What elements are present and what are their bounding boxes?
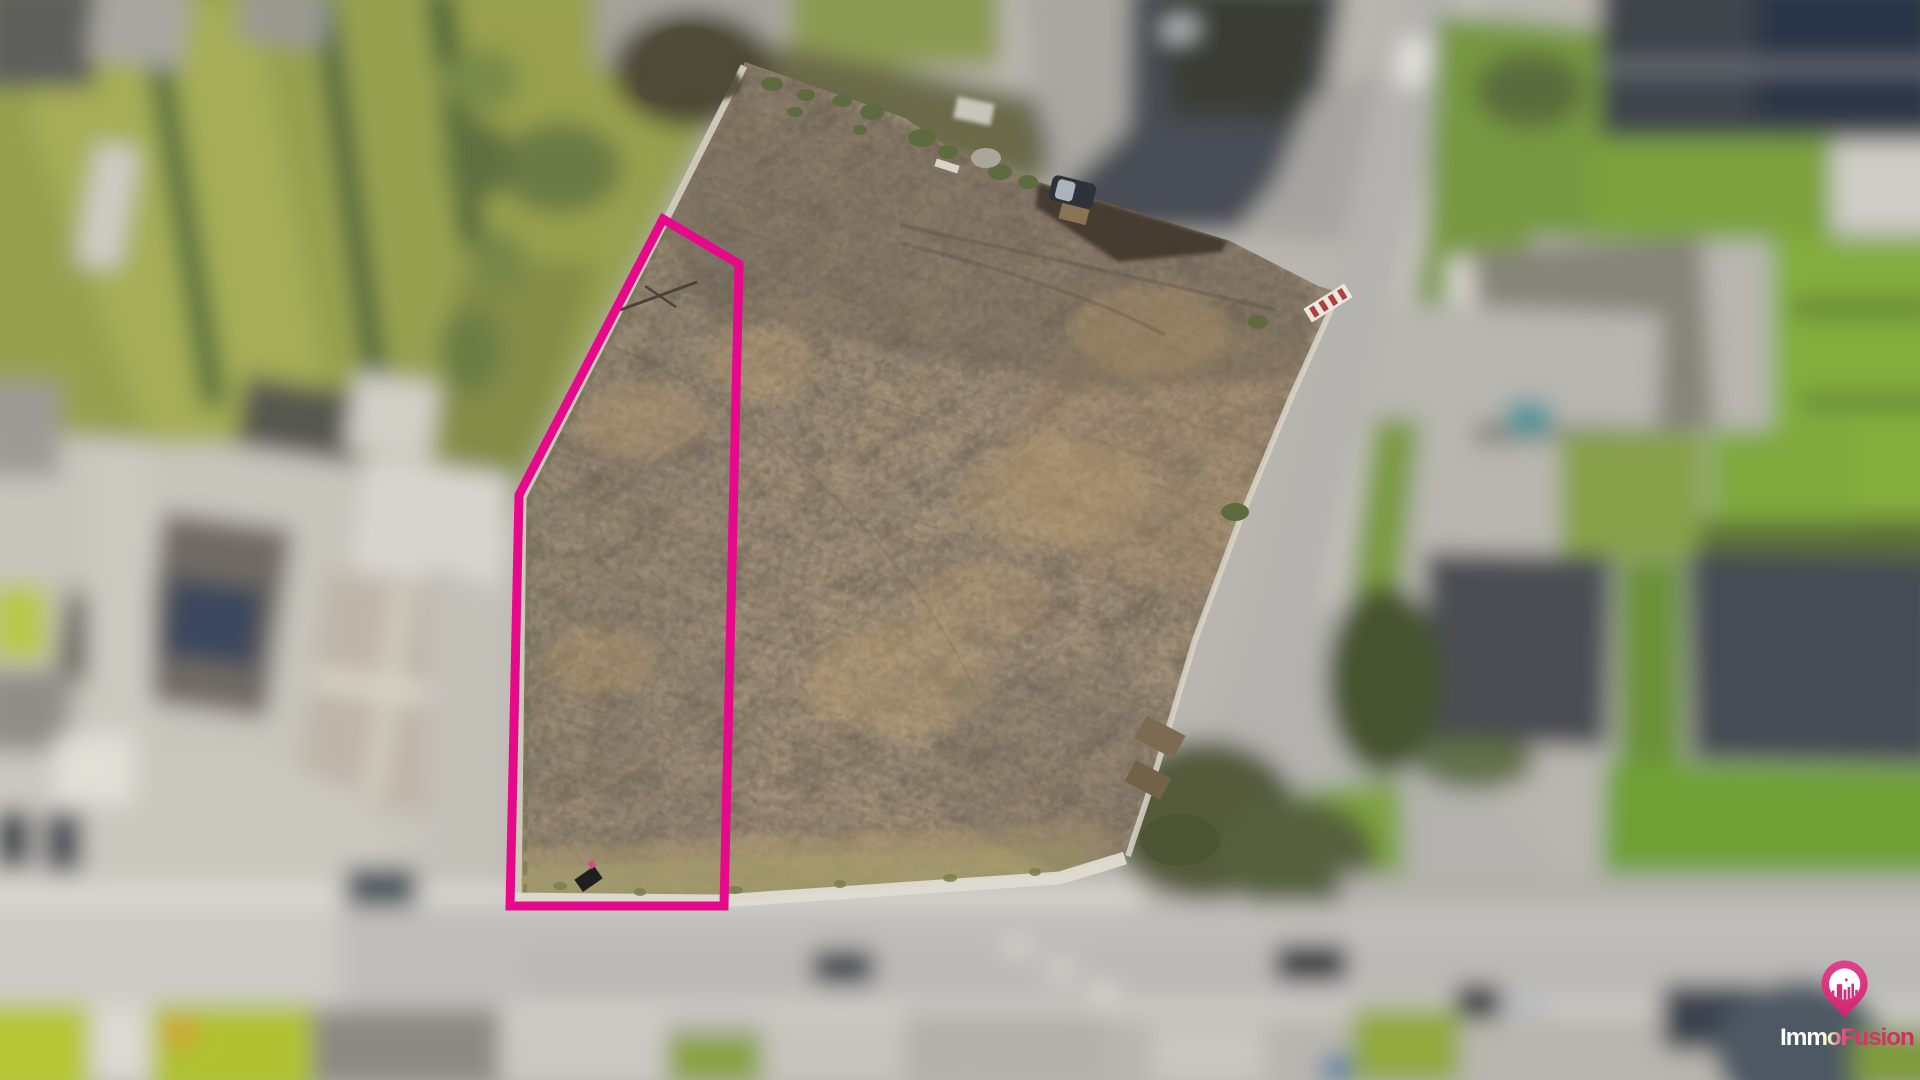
svg-text:ImmoFusion: ImmoFusion [1780,1024,1914,1051]
